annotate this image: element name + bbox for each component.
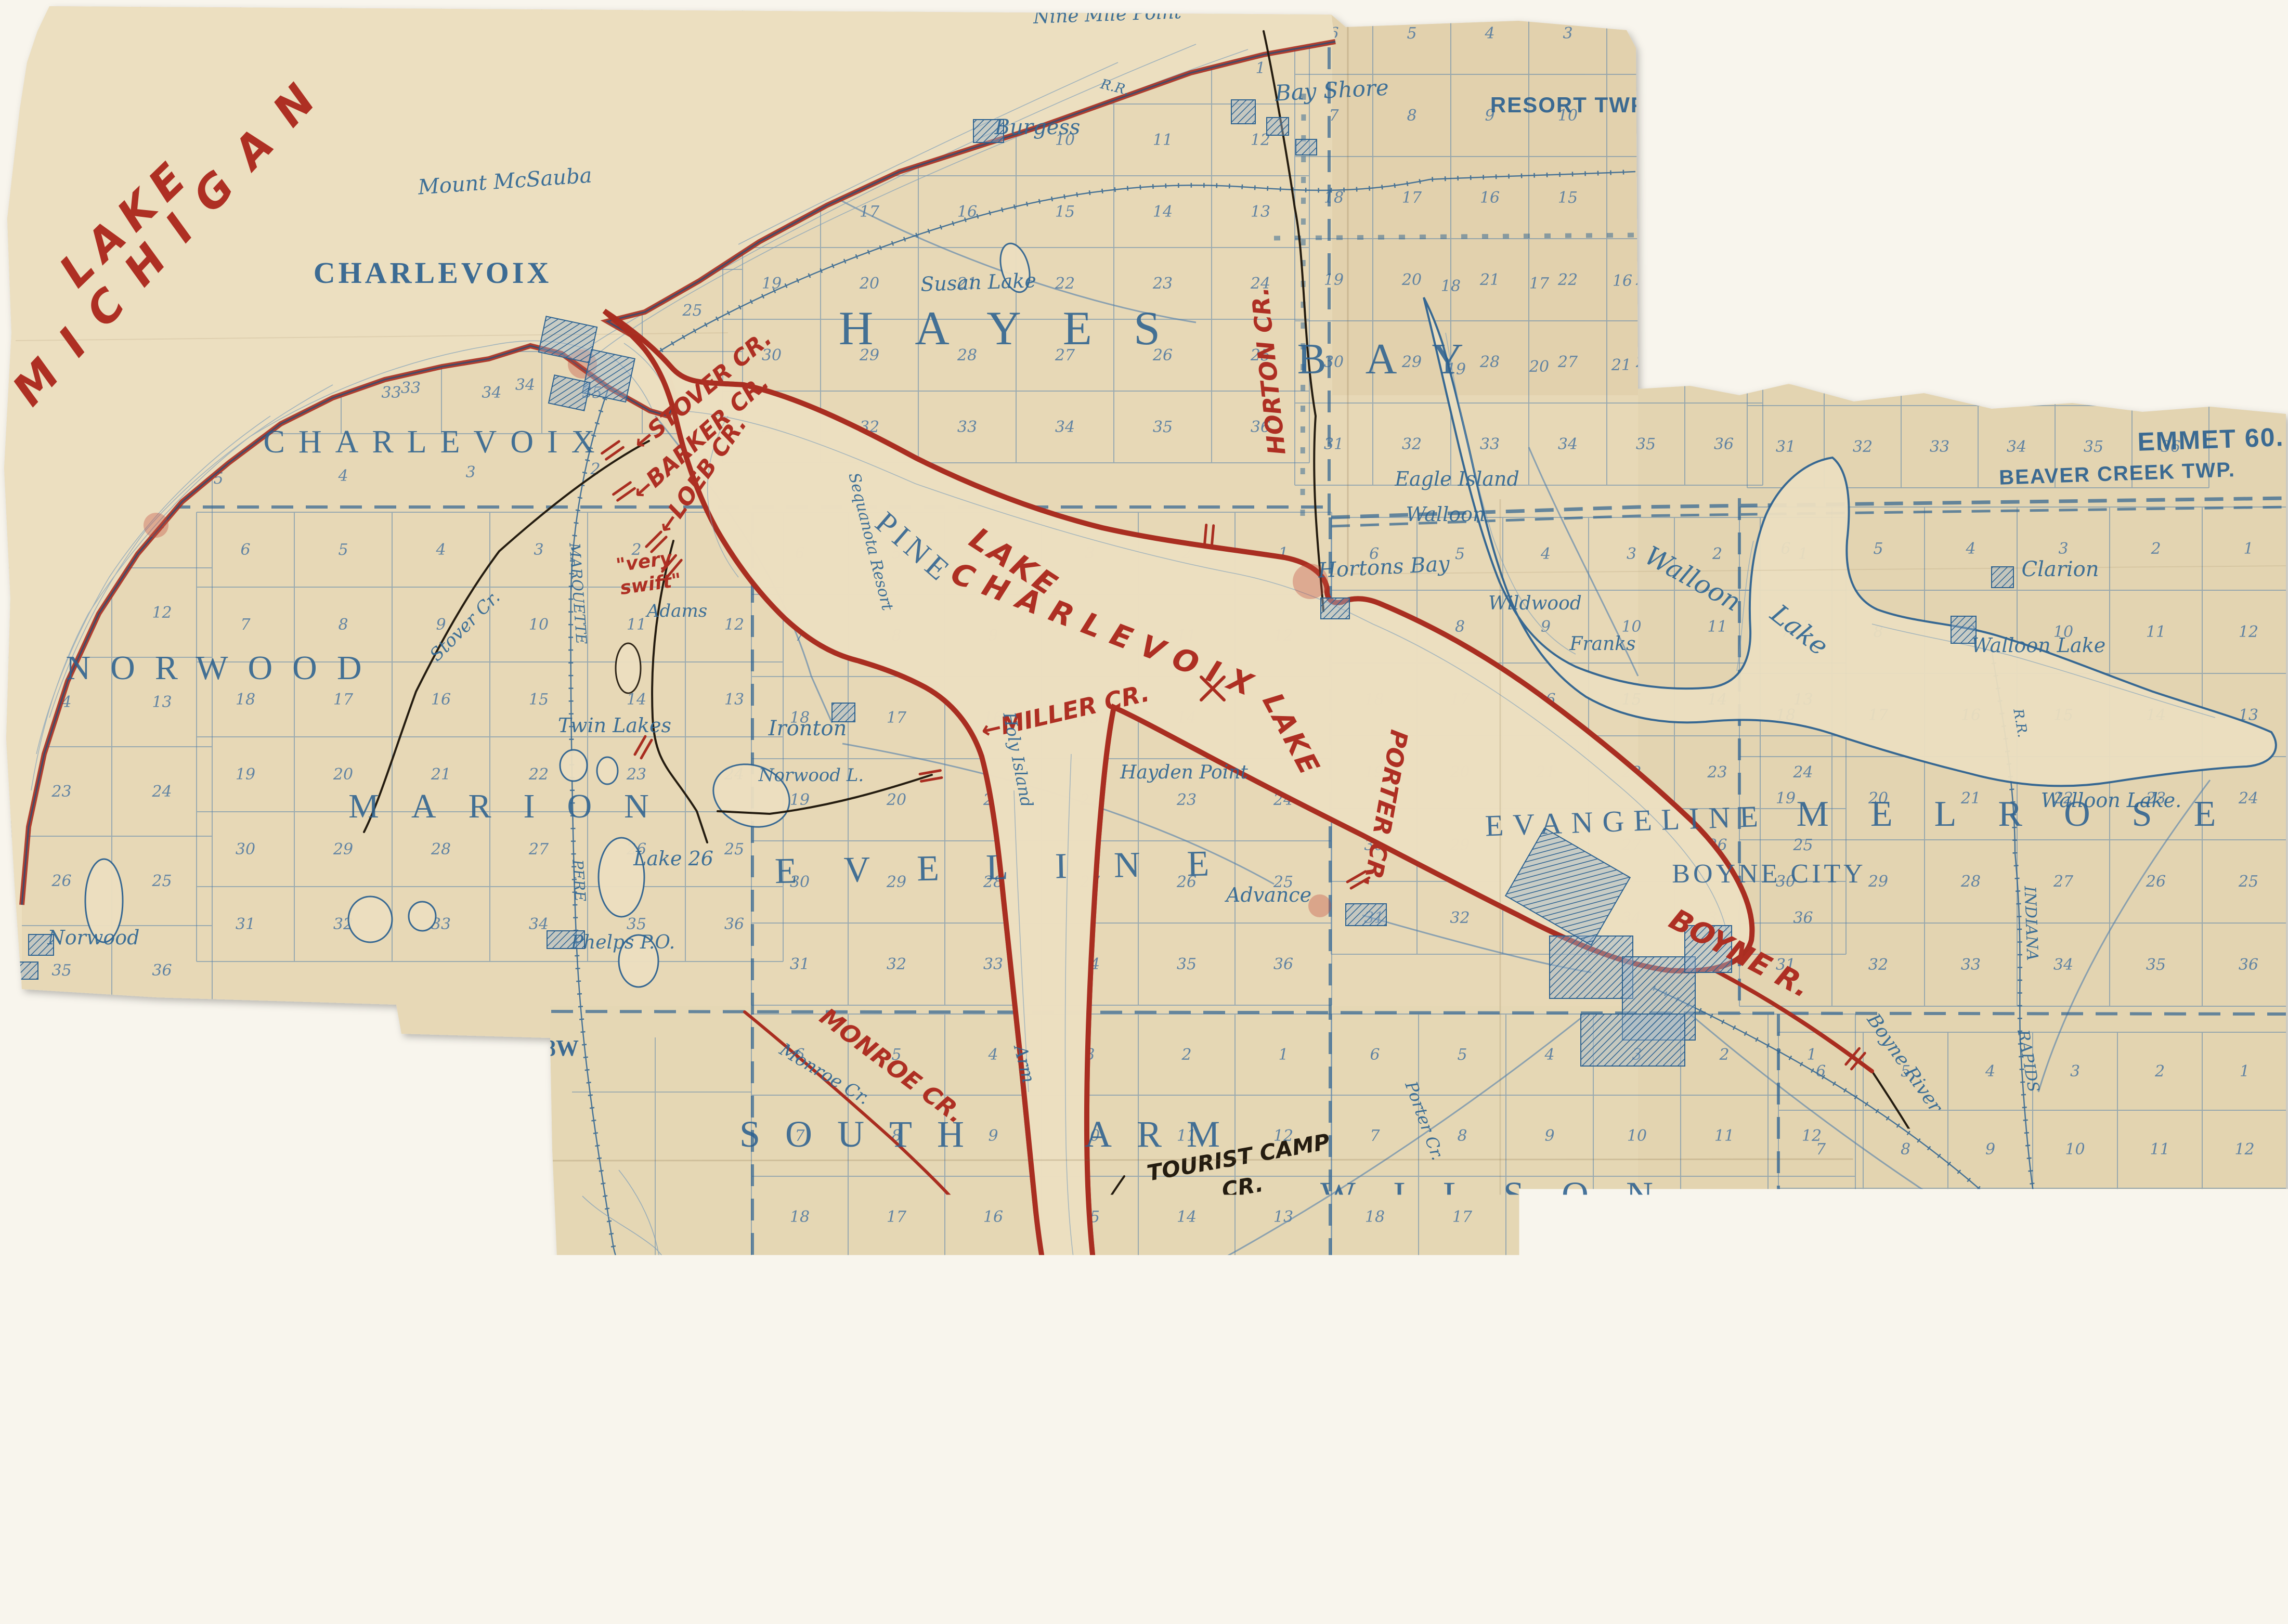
section-number-bay-33: 33	[1480, 435, 1500, 453]
section-number-norwood-24: 24	[151, 783, 172, 801]
section-number-eveline-32: 32	[887, 955, 906, 973]
section-number-south-arm-17: 17	[887, 1208, 907, 1226]
section-number-evangeline-23: 23	[1707, 763, 1727, 782]
label-8w: 8W	[544, 1035, 579, 1061]
section-number-boyne-valley-9: 9	[1985, 1140, 1995, 1159]
section-number-boyne-valley-33: 33	[1980, 1452, 2000, 1471]
label-matchett-l: Matchett L.	[379, 1055, 477, 1074]
label-east: EAST	[924, 1287, 1003, 1317]
section-number-south-arm-28: 28	[983, 1370, 1003, 1388]
section-number-marion-15: 15	[529, 691, 549, 709]
section-number-emmet-beaver-creek-11: 11	[2084, 109, 2103, 127]
section-number-emmet-beaver-creek-3: 3	[2011, 27, 2021, 45]
section-number-bay-14: 14	[1636, 189, 1656, 207]
section-number-wilson-27: 27	[1627, 1370, 1647, 1388]
section-number-eveline-17: 17	[887, 709, 907, 727]
section-number-emmet-beaver-creek-21: 21	[1929, 274, 1949, 292]
section-number-emmet-beaver-creek-12: 12	[2161, 109, 2180, 127]
section-number-18: 18	[1441, 277, 1461, 295]
label-valley: VALLEY	[2045, 1290, 2231, 1330]
section-number-norwood-13: 13	[152, 693, 172, 711]
section-number-wilson-28: 28	[1539, 1370, 1559, 1388]
section-number-south-arm-18: 18	[790, 1208, 810, 1226]
section-number-hayes-20: 20	[859, 275, 879, 293]
section-number-hayes-15: 15	[1055, 203, 1075, 221]
section-number-marion-19: 19	[236, 765, 255, 784]
label-melrose: MELROSE	[1797, 794, 2258, 834]
label-norwood: Norwood	[47, 926, 140, 949]
section-number-bay-26: 26	[1635, 353, 1656, 371]
section-number-emmet-beaver-creek-16: 16	[1930, 191, 1949, 210]
section-number-charlevoix-t34-25: 25	[682, 302, 702, 320]
section-number-boyne-valley-3: 3	[2070, 1062, 2080, 1081]
section-number-wilson-5: 5	[1457, 1046, 1467, 1064]
section-number-marion-17: 17	[333, 691, 354, 709]
section-number-boyne-valley-28: 28	[1980, 1374, 2000, 1393]
section-number-bay-5: 5	[1407, 24, 1416, 43]
section-number-boyne-valley-13: 13	[2234, 1218, 2254, 1237]
section-number-boyne-valley-24: 24	[2234, 1296, 2254, 1315]
section-number-boyne-valley-4: 4	[1985, 1062, 1995, 1081]
section-number-south-arm-2: 2	[1181, 1046, 1191, 1064]
label-antrim-county: ANTRIM— COUNTY	[1573, 1566, 1837, 1595]
section-number-2: 2	[1635, 1516, 1645, 1535]
section-number-emmet-beaver-creek-32: 32	[1853, 438, 1873, 456]
section-number-norwood-35: 35	[51, 962, 71, 980]
section-number-south-arm-33: 33	[983, 1451, 1003, 1470]
section-number-south-arm-26: 26	[1176, 1370, 1197, 1388]
section-number-wilson-2: 2	[1719, 1046, 1729, 1064]
section-number-evangeline-9: 9	[1541, 618, 1551, 636]
section-number-bay-8: 8	[1407, 107, 1416, 125]
section-number-wilson-23: 23	[1714, 1289, 1734, 1307]
section-number-boyne-valley-30: 30	[1811, 1374, 1830, 1393]
section-number-emmet-beaver-creek-8: 8	[1857, 109, 1867, 127]
section-number-boyne-valley-2: 2	[2154, 1062, 2165, 1081]
section-number-south-arm-36: 36	[1273, 1451, 1293, 1470]
section-number-marion-5: 5	[338, 541, 348, 559]
section-number-emmet-beaver-creek-23: 23	[2083, 274, 2103, 292]
label-eveline: EVELINE	[774, 843, 1256, 891]
section-number-bay-13: 13	[1714, 189, 1734, 207]
section-number-boyne-valley-27: 27	[2064, 1374, 2085, 1393]
section-number-norwood-25: 25	[151, 872, 172, 890]
section-number-4: 4	[337, 467, 348, 485]
section-number-melrose-29: 29	[1868, 873, 1888, 891]
section-number-bay-18: 18	[1324, 189, 1344, 207]
section-number-charlevoix-t34-33: 33	[381, 384, 401, 402]
section-number-evangeline-32: 32	[1450, 909, 1470, 927]
label-charlevoix: CHARLEVOIX	[314, 256, 552, 290]
section-number-emmet-beaver-creek-34: 34	[2007, 438, 2026, 456]
label-boyne-city: BOYNE CITY	[1672, 859, 1866, 889]
section-number-boyne-valley-8: 8	[1901, 1140, 1910, 1159]
section-number-south-arm-24: 24	[1273, 1289, 1293, 1307]
label-resort-twp: RESORT TWP.	[1490, 93, 1650, 117]
label-boyne: BOYNE	[1777, 1297, 1977, 1337]
section-number-wilson-35: 35	[1714, 1451, 1734, 1470]
section-number-4: 4	[1468, 1517, 1479, 1536]
section-number-bay-36: 36	[1714, 435, 1734, 453]
section-number-emmet-beaver-creek-31: 31	[1776, 438, 1796, 456]
section-number-bay-34: 34	[1558, 435, 1578, 453]
section-number-emmet-beaver-creek-35: 35	[2084, 438, 2103, 456]
section-number-marion-16: 16	[431, 691, 451, 709]
section-number-bay-19: 19	[1324, 271, 1344, 289]
label-r-7w: R.7W	[968, 1567, 1037, 1599]
section-number-boyne-valley-25: 25	[2234, 1374, 2254, 1393]
label-wilson: WILSON	[1320, 1174, 1691, 1216]
section-number-hayes-23: 23	[1152, 275, 1173, 293]
section-number-boyne-valley-17: 17	[1895, 1218, 1916, 1237]
label-boyne-falls: BOYNE FALLS	[2059, 1241, 2224, 1265]
section-number-1: 1	[1719, 1515, 1728, 1533]
label-marion: MARION	[348, 787, 681, 825]
section-number-norwood-23: 23	[51, 783, 71, 801]
section-number-marion-30: 30	[236, 840, 255, 859]
section-number-south-arm-23: 23	[1176, 1289, 1197, 1307]
section-number-marion-36: 36	[724, 915, 744, 933]
section-number-marion-35: 35	[627, 915, 646, 933]
section-number-melrose-25: 25	[2238, 873, 2258, 891]
label-hayes: HAYES	[839, 302, 1202, 355]
section-number-emmet-beaver-creek-6: 6	[1780, 27, 1790, 45]
section-number-melrose-34: 34	[2053, 956, 2073, 974]
section-number-wilson-9: 9	[1544, 1127, 1554, 1145]
section-number-boyne-valley-11: 11	[2150, 1140, 2169, 1159]
section-number-wilson-10: 10	[1627, 1127, 1647, 1145]
label-pere: PERE	[569, 859, 589, 902]
section-number-bay-24: 24	[1713, 271, 1734, 289]
section-number-melrose-27: 27	[2053, 873, 2074, 891]
section-number-34: 34	[515, 376, 535, 394]
section-number-emmet-beaver-creek-27: 27	[2006, 356, 2027, 374]
section-number-emmet-beaver-creek-13: 13	[2161, 191, 2180, 210]
section-number-emmet-beaver-creek-29: 29	[1852, 356, 1873, 374]
label-r-5w: R.5W	[2020, 1559, 2090, 1590]
section-number-hayes-1: 1	[1255, 59, 1265, 77]
section-number-boyne-valley-26: 26	[2149, 1374, 2169, 1393]
section-number-bay-16: 16	[1480, 189, 1500, 207]
label-lake-26: Lake 26	[633, 847, 713, 870]
section-number-emmet-beaver-creek-2: 2	[2088, 27, 2098, 45]
section-number-wilson-31: 31	[1365, 1451, 1385, 1470]
section-number-emmet-beaver-creek-28: 28	[1929, 356, 1949, 374]
section-number-south-arm-1: 1	[1278, 1046, 1288, 1064]
section-number-eveline-19: 19	[790, 791, 810, 809]
section-number-melrose-35: 35	[2146, 956, 2166, 974]
section-number-21: 21	[1611, 356, 1631, 374]
section-number-marion-9: 9	[436, 616, 446, 634]
section-number-evangeline-24: 24	[1792, 763, 1813, 782]
label-norwood-l: Norwood L.	[758, 765, 864, 786]
gauge-mark-9	[1154, 1421, 1175, 1423]
section-number-melrose-12: 12	[2239, 623, 2258, 641]
label-adams: Adams	[645, 601, 707, 621]
section-number-norwood-26: 26	[51, 872, 71, 890]
section-number-bay-17: 17	[1402, 189, 1422, 207]
section-number-boyne-valley-35: 35	[2150, 1452, 2169, 1471]
section-number-boyne-valley-29: 29	[1895, 1374, 1915, 1393]
section-number-boyne-valley-7: 7	[1816, 1140, 1826, 1159]
section-number-emmet-beaver-creek-22: 22	[2006, 274, 2026, 292]
section-number-melrose-5: 5	[1873, 540, 1883, 558]
section-number-emmet-beaver-creek-26: 26	[2083, 356, 2103, 374]
section-number-marion-4: 4	[435, 541, 446, 559]
section-number-bay-2: 2	[1640, 24, 1650, 43]
section-number-wilson-14: 14	[1714, 1208, 1734, 1226]
section-number-emmet-beaver-creek-30: 30	[1776, 356, 1796, 374]
label-franks: Franks	[1569, 633, 1635, 655]
label-clarion: Clarion	[2021, 557, 2099, 581]
section-number-melrose-32: 32	[1868, 956, 1888, 974]
section-number-emmet-beaver-creek-5: 5	[1857, 27, 1867, 45]
section-number-eveline-33: 33	[983, 955, 1003, 973]
section-number-norwood-36: 36	[152, 962, 172, 980]
section-number-marion-25: 25	[724, 840, 744, 859]
section-number-boyne-valley-1: 1	[2240, 1062, 2250, 1081]
section-number-marion-3: 3	[534, 541, 543, 559]
section-number-marion-34: 34	[529, 915, 549, 933]
gauge-mark-7	[1212, 526, 1213, 547]
section-number-evangeline-36: 36	[1793, 909, 1813, 927]
section-number-south-arm-30: 30	[790, 1370, 810, 1388]
section-number-eveline-31: 31	[790, 955, 810, 973]
section-number-melrose-26: 26	[2146, 873, 2166, 891]
section-number-marion-18: 18	[236, 691, 255, 709]
label-advance: Advance	[1225, 884, 1311, 906]
section-number-marion-8: 8	[338, 616, 348, 634]
section-number-bay-27: 27	[1557, 353, 1578, 371]
section-number-hayes-13: 13	[1251, 203, 1270, 221]
section-number-bay-35: 35	[1636, 435, 1656, 453]
clarion-hatch	[1992, 567, 2013, 588]
section-number-boyne-valley-12: 12	[2234, 1140, 2254, 1159]
section-number-emmet-beaver-creek-33: 33	[1930, 438, 1949, 456]
label-hayden-point: Hayden Point	[1120, 762, 1248, 783]
label-r-6w: R.6W	[1442, 1562, 1512, 1593]
section-number-boyne-valley-10: 10	[2065, 1140, 2085, 1159]
section-number-3: 3	[465, 463, 475, 482]
label-susan-lake: Susan Lake	[920, 269, 1037, 296]
section-number-marion-6: 6	[240, 541, 250, 559]
section-number-bay-22: 22	[1557, 271, 1578, 289]
section-number-emmet-beaver-creek-18: 18	[1776, 191, 1796, 210]
section-number-melrose-3: 3	[2058, 540, 2068, 558]
section-number-6: 6	[1118, 1577, 1128, 1595]
section-number-1: 1	[2234, 1532, 2244, 1551]
section-number-evangeline-2: 2	[1712, 545, 1722, 563]
section-number-wilson-26: 26	[1714, 1370, 1734, 1388]
section-number-wilson-4: 4	[1544, 1046, 1554, 1064]
section-number-marion-29: 29	[333, 840, 353, 859]
section-number-emmet-beaver-creek-9: 9	[1934, 109, 1944, 127]
section-number-norwood-12: 12	[152, 604, 172, 622]
section-number-boyne-valley-36: 36	[2234, 1452, 2254, 1471]
section-number-5: 5	[1902, 1518, 1912, 1536]
section-number-evangeline-3: 3	[1627, 545, 1636, 563]
section-number-marion-28: 28	[431, 840, 451, 859]
section-number-wilson-6: 6	[1370, 1046, 1380, 1064]
section-number-marion-10: 10	[529, 616, 549, 634]
section-number-wilson-11: 11	[1714, 1127, 1734, 1145]
section-number-melrose-11: 11	[2146, 623, 2166, 641]
label-jordan: JORDAN	[930, 1314, 1055, 1344]
section-number-33: 33	[401, 379, 421, 397]
section-number-south-arm-35: 35	[1177, 1451, 1197, 1470]
label-wildwood: Wildwood	[1488, 593, 1582, 614]
label-burgess: Burgess	[994, 115, 1081, 139]
adams-lake	[616, 643, 641, 693]
section-number-marion-11: 11	[627, 616, 646, 634]
section-number-bay-1: 1	[1719, 24, 1728, 43]
section-number-emmet-beaver-creek-4: 4	[1934, 27, 1944, 45]
section-number-bay-32: 32	[1402, 435, 1422, 453]
label-indiana: INDIANA	[2020, 885, 2041, 961]
section-number-melrose-4: 4	[1965, 540, 1975, 558]
section-number-boyne-valley-14: 14	[2150, 1218, 2169, 1237]
section-number-south-arm-14: 14	[1177, 1208, 1197, 1226]
section-number-16: 16	[1613, 272, 1632, 290]
section-number-melrose-33: 33	[1961, 956, 1981, 974]
section-number-hayes-14: 14	[1153, 203, 1173, 221]
section-number-eveline-35: 35	[1177, 955, 1197, 973]
section-number-emmet-beaver-creek-24: 24	[2160, 274, 2180, 292]
section-number-melrose-1: 1	[2243, 540, 2253, 558]
section-number-hayes-16: 16	[957, 203, 977, 221]
section-number-wilson-8: 8	[1457, 1127, 1467, 1145]
section-number-eveline-20: 20	[886, 791, 906, 809]
section-number-hayes-19: 19	[762, 275, 782, 293]
section-number-3: 3	[1552, 1518, 1562, 1537]
section-number-bay-25: 25	[1713, 353, 1734, 371]
section-number-wilson-19: 19	[1365, 1289, 1385, 1307]
section-number-south-arm-20: 20	[886, 1289, 906, 1307]
section-number-evangeline-25: 25	[1792, 836, 1813, 854]
section-number-charlevoix-t34-34: 34	[482, 384, 501, 402]
section-number-south-arm-4: 4	[987, 1046, 998, 1064]
section-number-emmet-beaver-creek-15: 15	[2007, 191, 2026, 210]
section-number-wilson-20: 20	[1452, 1289, 1472, 1307]
section-number-bay-12: 12	[1714, 107, 1734, 125]
section-number-3: 3	[2070, 1519, 2079, 1537]
label-ironton: Ironton	[768, 717, 847, 740]
section-number-eveline-36: 36	[1273, 955, 1293, 973]
section-number-5: 5	[1305, 1575, 1315, 1593]
section-number-evangeline-4: 4	[1540, 545, 1551, 563]
section-number-bay-4: 4	[1484, 24, 1494, 43]
section-number-marion-13: 13	[724, 691, 744, 709]
section-number-melrose-2: 2	[2150, 540, 2161, 558]
section-number-6: 6	[1802, 1519, 1812, 1537]
section-number-emmet-beaver-creek-14: 14	[2084, 191, 2103, 210]
label-twin-lakes: Twin Lakes	[558, 714, 671, 737]
label-charlevoix: CHARLEVOIX	[264, 424, 608, 460]
label-emmet-60: EMMET 60.	[2137, 422, 2285, 457]
section-number-marion-31: 31	[236, 915, 255, 933]
section-number-south-arm-32: 32	[887, 1451, 906, 1470]
county-map-svg: 6543217891011121817161514131920212223243…	[0, 0, 2288, 1624]
section-number-hayes-33: 33	[957, 418, 977, 436]
label-eagle-island: Eagle Island	[1394, 467, 1519, 490]
section-number-melrose-36: 36	[2239, 956, 2258, 974]
section-number-south-arm-34: 34	[1080, 1451, 1100, 1470]
label-south: SOUTH	[739, 1113, 989, 1155]
section-number-evangeline-8: 8	[1455, 618, 1465, 636]
section-number-marion-22: 22	[528, 765, 549, 784]
section-number-south-arm-19: 19	[790, 1289, 810, 1307]
section-number-hayes-35: 35	[1153, 418, 1173, 436]
section-number-4: 4	[1985, 1517, 1995, 1536]
section-number-marion-23: 23	[626, 765, 646, 784]
section-number-boyne-valley-18: 18	[1811, 1218, 1830, 1237]
section-number-bay-21: 21	[1479, 271, 1500, 289]
section-number-emmet-beaver-creek-19: 19	[1776, 274, 1796, 292]
section-number-wilson-21: 21	[1539, 1289, 1559, 1307]
section-number-bay-20: 20	[1401, 271, 1422, 289]
section-number-boyne-valley-31: 31	[1811, 1452, 1830, 1471]
section-number-south-arm-9: 9	[988, 1127, 998, 1145]
section-number-marion-27: 27	[528, 840, 549, 859]
section-number-emmet-beaver-creek-25: 25	[2160, 356, 2180, 374]
section-number-marion-7: 7	[240, 616, 251, 634]
section-number-emmet-beaver-creek-7: 7	[1780, 109, 1791, 127]
section-number-boyne-valley-34: 34	[2065, 1452, 2085, 1471]
section-number-south-arm-29: 29	[886, 1370, 906, 1388]
advance-hatch	[1346, 904, 1386, 926]
label-arm: ARM	[1085, 1113, 1245, 1155]
section-number-emmet-beaver-creek-17: 17	[1853, 191, 1873, 210]
section-number-20: 20	[1529, 358, 1549, 376]
section-number-bay-3: 3	[1563, 24, 1572, 43]
label-bay: BAY	[1297, 335, 1503, 383]
section-number-marion-21: 21	[431, 765, 451, 784]
section-number-hayes-34: 34	[1055, 418, 1075, 436]
section-number-marion-12: 12	[724, 616, 744, 634]
section-number-boyne-valley-32: 32	[1895, 1452, 1915, 1471]
section-number-evangeline-11: 11	[1707, 618, 1727, 636]
gauge-mark-7	[1204, 525, 1206, 545]
section-number-emmet-beaver-creek-10: 10	[2007, 109, 2026, 127]
label-norwood: NORWOOD	[66, 649, 382, 687]
section-number-2: 2	[2160, 1531, 2170, 1550]
section-number-melrose-28: 28	[1960, 873, 1981, 891]
section-number-wilson-7: 7	[1370, 1127, 1380, 1145]
section-number-17: 17	[1529, 275, 1550, 293]
section-number-wilson-22: 22	[1627, 1289, 1647, 1307]
section-number-bay-31: 31	[1324, 435, 1344, 453]
section-number-eveline-23: 23	[1176, 791, 1197, 809]
label-walloon-lake: Walloon Lake	[1971, 634, 2105, 657]
section-number-bay-23: 23	[1635, 271, 1656, 289]
section-number-emmet-beaver-creek-1: 1	[2165, 27, 2175, 45]
map-scan: 6543217891011121817161514131920212223243…	[0, 0, 2288, 1624]
section-number-evangeline-5: 5	[1455, 545, 1465, 563]
section-number-hayes-11: 11	[1153, 131, 1173, 149]
section-number-south-arm-16: 16	[983, 1208, 1003, 1226]
section-number-emmet-beaver-creek-20: 20	[1852, 274, 1873, 292]
section-number-wilson-34: 34	[1627, 1451, 1647, 1470]
section-number-bay-15: 15	[1558, 189, 1578, 207]
section-number-melrose-19: 19	[1776, 789, 1796, 808]
section-number-marion-20: 20	[333, 765, 353, 784]
section-number-wilson-32: 32	[1452, 1451, 1472, 1470]
label-walloon: Walloon	[1406, 503, 1486, 526]
hortons-bay-hatch	[1321, 598, 1349, 619]
section-number-bay-11: 11	[1636, 107, 1656, 125]
label-phelps-p-o: Phelps P.O.	[570, 932, 675, 953]
section-number-wilson-1: 1	[1806, 1046, 1816, 1064]
